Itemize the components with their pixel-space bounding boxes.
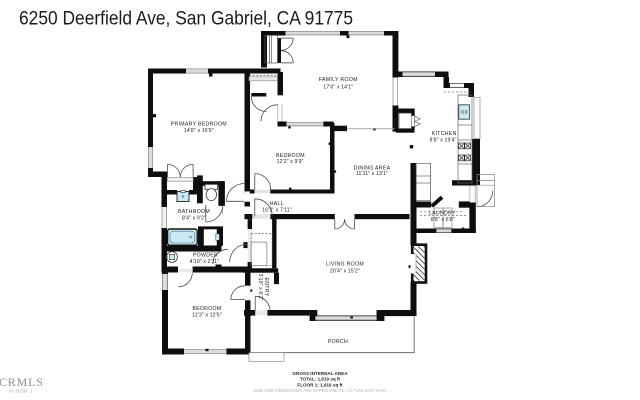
svg-text:8'8" x 6'8": 8'8" x 6'8" xyxy=(431,217,455,223)
svg-text:16'2" x 7'11": 16'2" x 7'11" xyxy=(262,208,292,214)
svg-text:17'6" x 14'1": 17'6" x 14'1" xyxy=(323,84,353,90)
svg-text:BEDROOM: BEDROOM xyxy=(193,306,222,312)
svg-text:20'4" x 15'2": 20'4" x 15'2" xyxy=(330,268,360,274)
svg-text:12'2" x 9'9": 12'2" x 9'9" xyxy=(277,159,304,165)
svg-text:GROSS INTERNAL AREA: GROSS INTERNAL AREA xyxy=(292,371,348,376)
svg-text:KITCHEN: KITCHEN xyxy=(432,131,457,137)
svg-text:POWDER: POWDER xyxy=(193,252,218,258)
svg-text:8'8" x 19'4": 8'8" x 19'4" xyxy=(430,137,457,143)
svg-text:FLOOR 1: 1,819 sq ft: FLOOR 1: 1,819 sq ft xyxy=(297,383,343,388)
svg-text:LAUNDRY: LAUNDRY xyxy=(429,211,456,217)
svg-text:HALL: HALL xyxy=(270,201,284,207)
svg-text:3'10" x 6'2": 3'10" x 6'2" xyxy=(257,274,263,301)
svg-text:TOTAL: 1,819 sq ft: TOTAL: 1,819 sq ft xyxy=(300,377,341,382)
svg-text:PORCH: PORCH xyxy=(328,339,348,345)
svg-text:12'3" x 12'5": 12'3" x 12'5" xyxy=(192,312,222,318)
svg-text:FLOOR 1: FLOOR 1 xyxy=(9,389,33,395)
svg-text:BATHROOM: BATHROOM xyxy=(178,209,210,215)
svg-text:FAMILY ROOM: FAMILY ROOM xyxy=(319,77,358,83)
svg-text:SIZE AND DIMENSIONS ARE APPROX: SIZE AND DIMENSIONS ARE APPROXIMATE, ACT… xyxy=(253,388,387,393)
svg-text:4'10" x 2'11": 4'10" x 2'11" xyxy=(190,259,220,265)
svg-text:11'11" x 13'1": 11'11" x 13'1" xyxy=(356,171,388,177)
svg-text:PRIMARY BEDROOM: PRIMARY BEDROOM xyxy=(171,122,227,128)
svg-text:6250 Deerfield Ave, San Gabrie: 6250 Deerfield Ave, San Gabriel, CA 9177… xyxy=(19,8,353,30)
svg-text:BEDROOM: BEDROOM xyxy=(276,153,305,159)
svg-text:8'4" x 9'2": 8'4" x 9'2" xyxy=(182,215,206,221)
svg-text:LIVING ROOM: LIVING ROOM xyxy=(326,262,364,268)
svg-text:CRMLS: CRMLS xyxy=(0,375,44,389)
svg-text:14'8" x 16'9": 14'8" x 16'9" xyxy=(184,128,214,134)
